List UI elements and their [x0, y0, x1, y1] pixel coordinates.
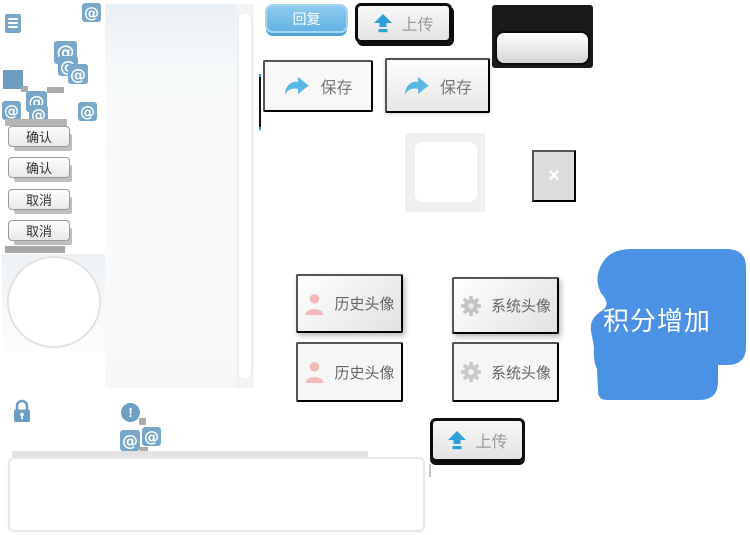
reply-button[interactable]: 回复: [265, 4, 348, 33]
gray-swatch: [139, 418, 146, 425]
scroll-panel: [105, 4, 254, 388]
cancel-button[interactable]: 取消: [8, 220, 70, 241]
mention-icon[interactable]: @: [120, 430, 140, 451]
lock-icon: [13, 399, 31, 423]
confirm-button[interactable]: 确认: [8, 157, 70, 178]
confirm-button[interactable]: 确认: [8, 126, 70, 147]
upload-label: 上传: [401, 11, 433, 35]
dark-panel: [492, 5, 593, 68]
points-increase-label: 积分增加: [603, 301, 735, 338]
save-label: 保存: [320, 74, 352, 98]
points-increase-bubble: 积分增加: [590, 243, 748, 401]
avatar-circle-placeholder: [7, 256, 101, 348]
mention-icon: @: [68, 64, 88, 84]
system-avatar-button[interactable]: 系统头像: [452, 277, 559, 334]
history-avatar-button[interactable]: 历史头像: [296, 342, 403, 402]
mention-icon[interactable]: @: [2, 101, 21, 120]
gray-bar: [5, 246, 65, 253]
alert-icon: !: [121, 403, 140, 422]
history-avatar-label: 历史头像: [334, 293, 394, 314]
close-button[interactable]: ×: [532, 150, 576, 202]
image-crop-frame: [405, 133, 485, 212]
upload-arrow-icon: [447, 431, 467, 450]
comment-textarea[interactable]: [8, 457, 425, 532]
upload-button[interactable]: 上传: [355, 3, 452, 43]
gear-icon: [460, 361, 482, 383]
mention-icon: @: [142, 427, 161, 446]
share-arrow-icon: [403, 76, 430, 96]
cancel-button[interactable]: 取消: [8, 189, 70, 210]
gray-bar: [5, 119, 67, 126]
history-avatar-button[interactable]: 历史头像: [296, 274, 403, 333]
system-avatar-label: 系统头像: [491, 295, 551, 316]
blank-button[interactable]: [495, 31, 590, 65]
person-icon: [304, 293, 325, 315]
gray-swatch: [21, 86, 28, 92]
save-button[interactable]: 保存: [263, 60, 373, 112]
sprite-canvas: @ @ @ @ @ @ @ @ @ @ 确认 确认 取消 取消 回复 上传: [0, 0, 750, 535]
image-crop-placeholder: [415, 142, 477, 202]
scrollbar-thumb[interactable]: [238, 12, 252, 380]
upload-button[interactable]: 上传: [430, 418, 525, 462]
blue-swatch: [3, 70, 23, 89]
upload-label: 上传: [475, 428, 507, 452]
share-arrow-icon: [283, 76, 310, 96]
gear-icon: [460, 295, 482, 317]
system-avatar-button[interactable]: 系统头像: [452, 342, 559, 402]
system-avatar-label: 系统头像: [491, 362, 551, 383]
upload-arrow-icon: [373, 14, 393, 33]
text-cursor: [429, 464, 431, 477]
history-avatar-label: 历史头像: [334, 362, 394, 383]
save-label: 保存: [440, 74, 472, 98]
mention-icon[interactable]: @: [82, 3, 101, 22]
save-button[interactable]: 保存: [385, 58, 490, 113]
gray-swatch: [47, 87, 64, 93]
text-cursor: [259, 74, 261, 130]
mention-icon[interactable]: @: [78, 102, 97, 121]
person-icon: [304, 361, 325, 383]
menu-icon[interactable]: [5, 14, 21, 33]
